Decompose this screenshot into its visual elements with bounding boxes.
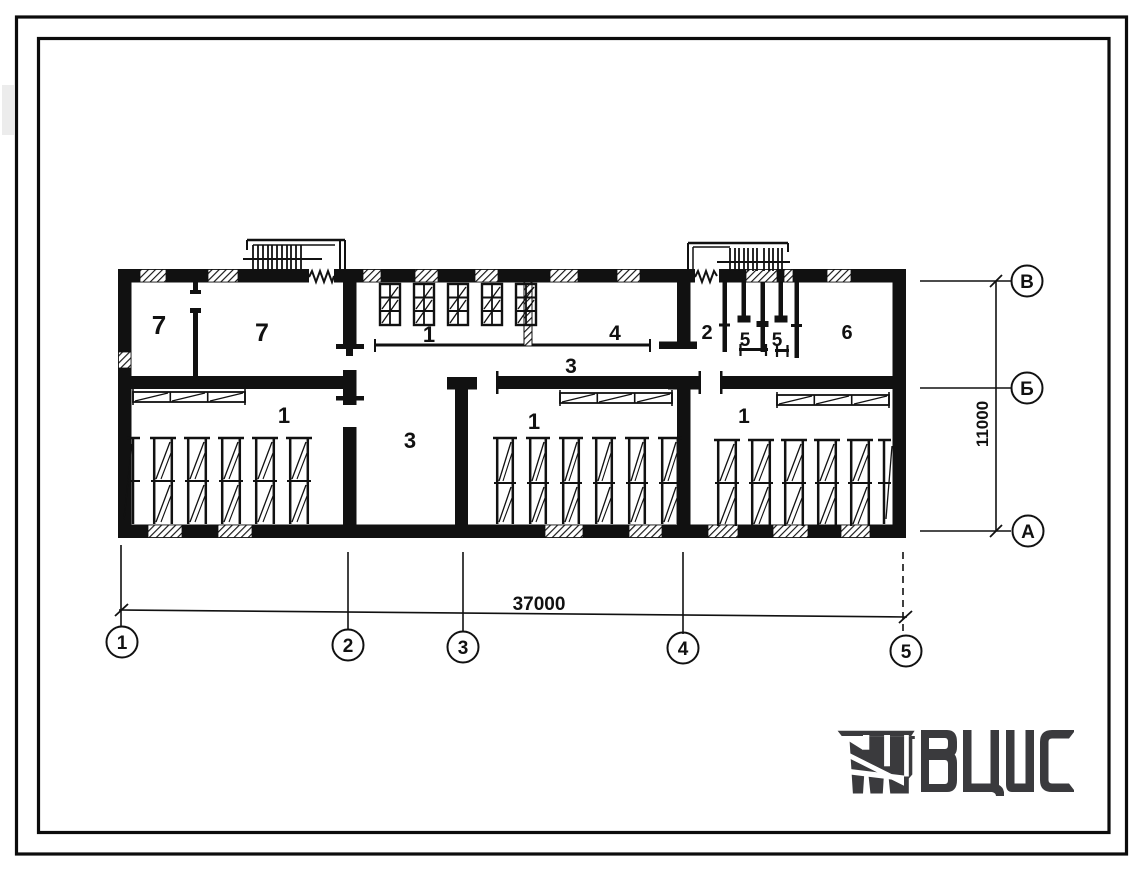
svg-text:5: 5 bbox=[772, 330, 783, 351]
svg-text:1: 1 bbox=[423, 322, 435, 347]
svg-text:2: 2 bbox=[701, 322, 712, 344]
svg-text:1: 1 bbox=[117, 633, 128, 654]
svg-text:А: А bbox=[1021, 522, 1035, 543]
svg-text:7: 7 bbox=[255, 319, 269, 347]
svg-text:Б: Б bbox=[1020, 379, 1034, 400]
svg-text:5: 5 bbox=[901, 642, 912, 663]
svg-text:3: 3 bbox=[404, 428, 416, 453]
svg-text:5: 5 bbox=[740, 330, 751, 351]
svg-text:6: 6 bbox=[841, 322, 852, 344]
svg-text:7: 7 bbox=[152, 310, 166, 340]
svg-text:В: В bbox=[1020, 272, 1034, 293]
svg-text:1: 1 bbox=[528, 409, 540, 434]
svg-text:1: 1 bbox=[738, 405, 750, 428]
svg-text:1: 1 bbox=[278, 403, 290, 428]
svg-text:3: 3 bbox=[565, 355, 577, 378]
svg-text:4: 4 bbox=[678, 639, 689, 660]
svg-text:3: 3 bbox=[458, 638, 469, 659]
svg-text:37000: 37000 bbox=[513, 594, 566, 615]
svg-text:4: 4 bbox=[609, 322, 621, 345]
svg-text:2: 2 bbox=[343, 636, 354, 657]
svg-text:11000: 11000 bbox=[973, 401, 992, 447]
